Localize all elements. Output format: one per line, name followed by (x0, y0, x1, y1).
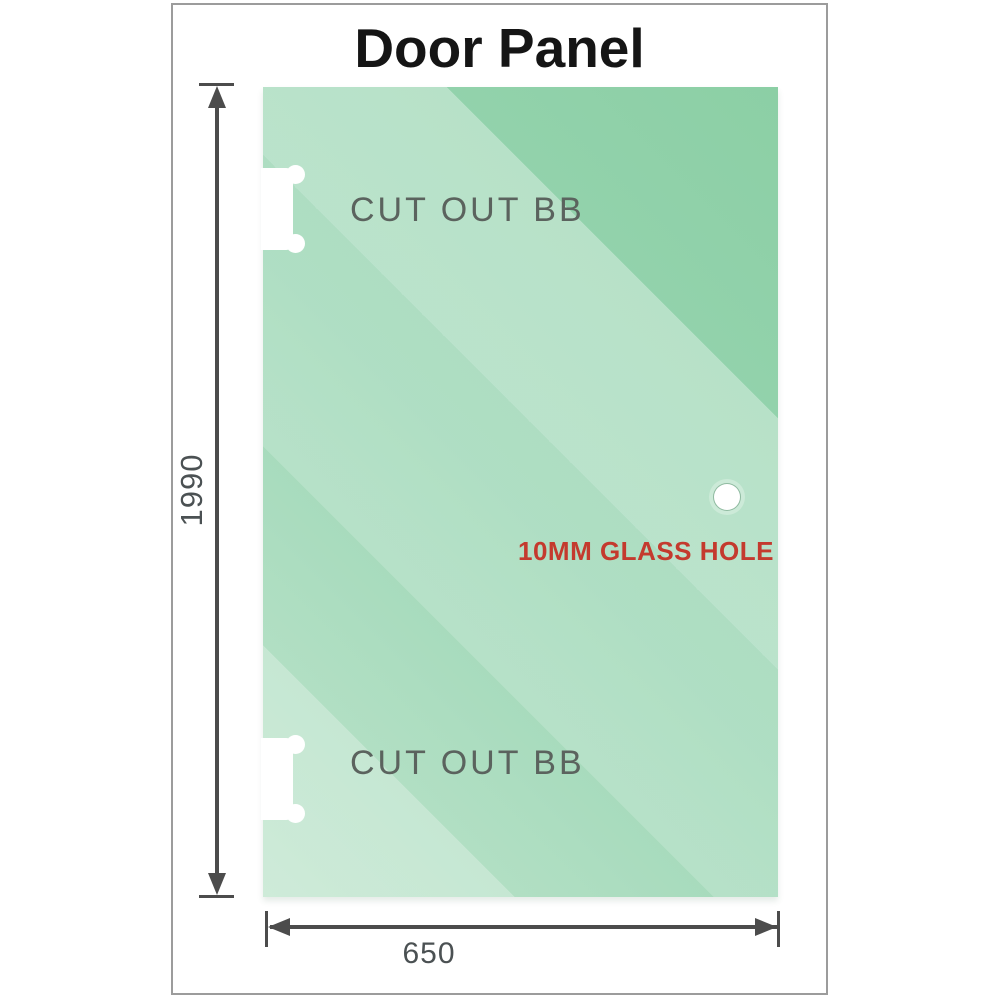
glass-panel: CUT OUT BB CUT OUT BB 10MM GLASS HOLE (263, 87, 778, 897)
arrow-down-icon (208, 873, 226, 895)
arrow-up-icon (208, 86, 226, 108)
arrow-left-icon (268, 918, 290, 936)
glass-hole (714, 484, 740, 510)
cutout-label-bottom: CUT OUT BB (350, 743, 585, 783)
width-dimension-label: 650 (379, 937, 479, 971)
dimension-line-vertical (215, 96, 219, 885)
glass-hole-label: 10MM GLASS HOLE (518, 536, 774, 566)
cutout-label-top: CUT OUT BB (350, 190, 585, 230)
arrow-right-icon (755, 918, 777, 936)
height-dimension-label: 1990 (172, 428, 212, 552)
dimension-cap-right (777, 911, 780, 947)
dimension-line-horizontal (270, 925, 777, 929)
page-title: Door Panel (171, 16, 828, 80)
door-panel-diagram: Door Panel CUT OUT BB CUT OUT BB 10MM GL… (0, 0, 1000, 1000)
hinge-cutout-bottom (261, 738, 293, 820)
dimension-cap-bottom (199, 895, 234, 898)
hinge-cutout-top (261, 168, 293, 250)
